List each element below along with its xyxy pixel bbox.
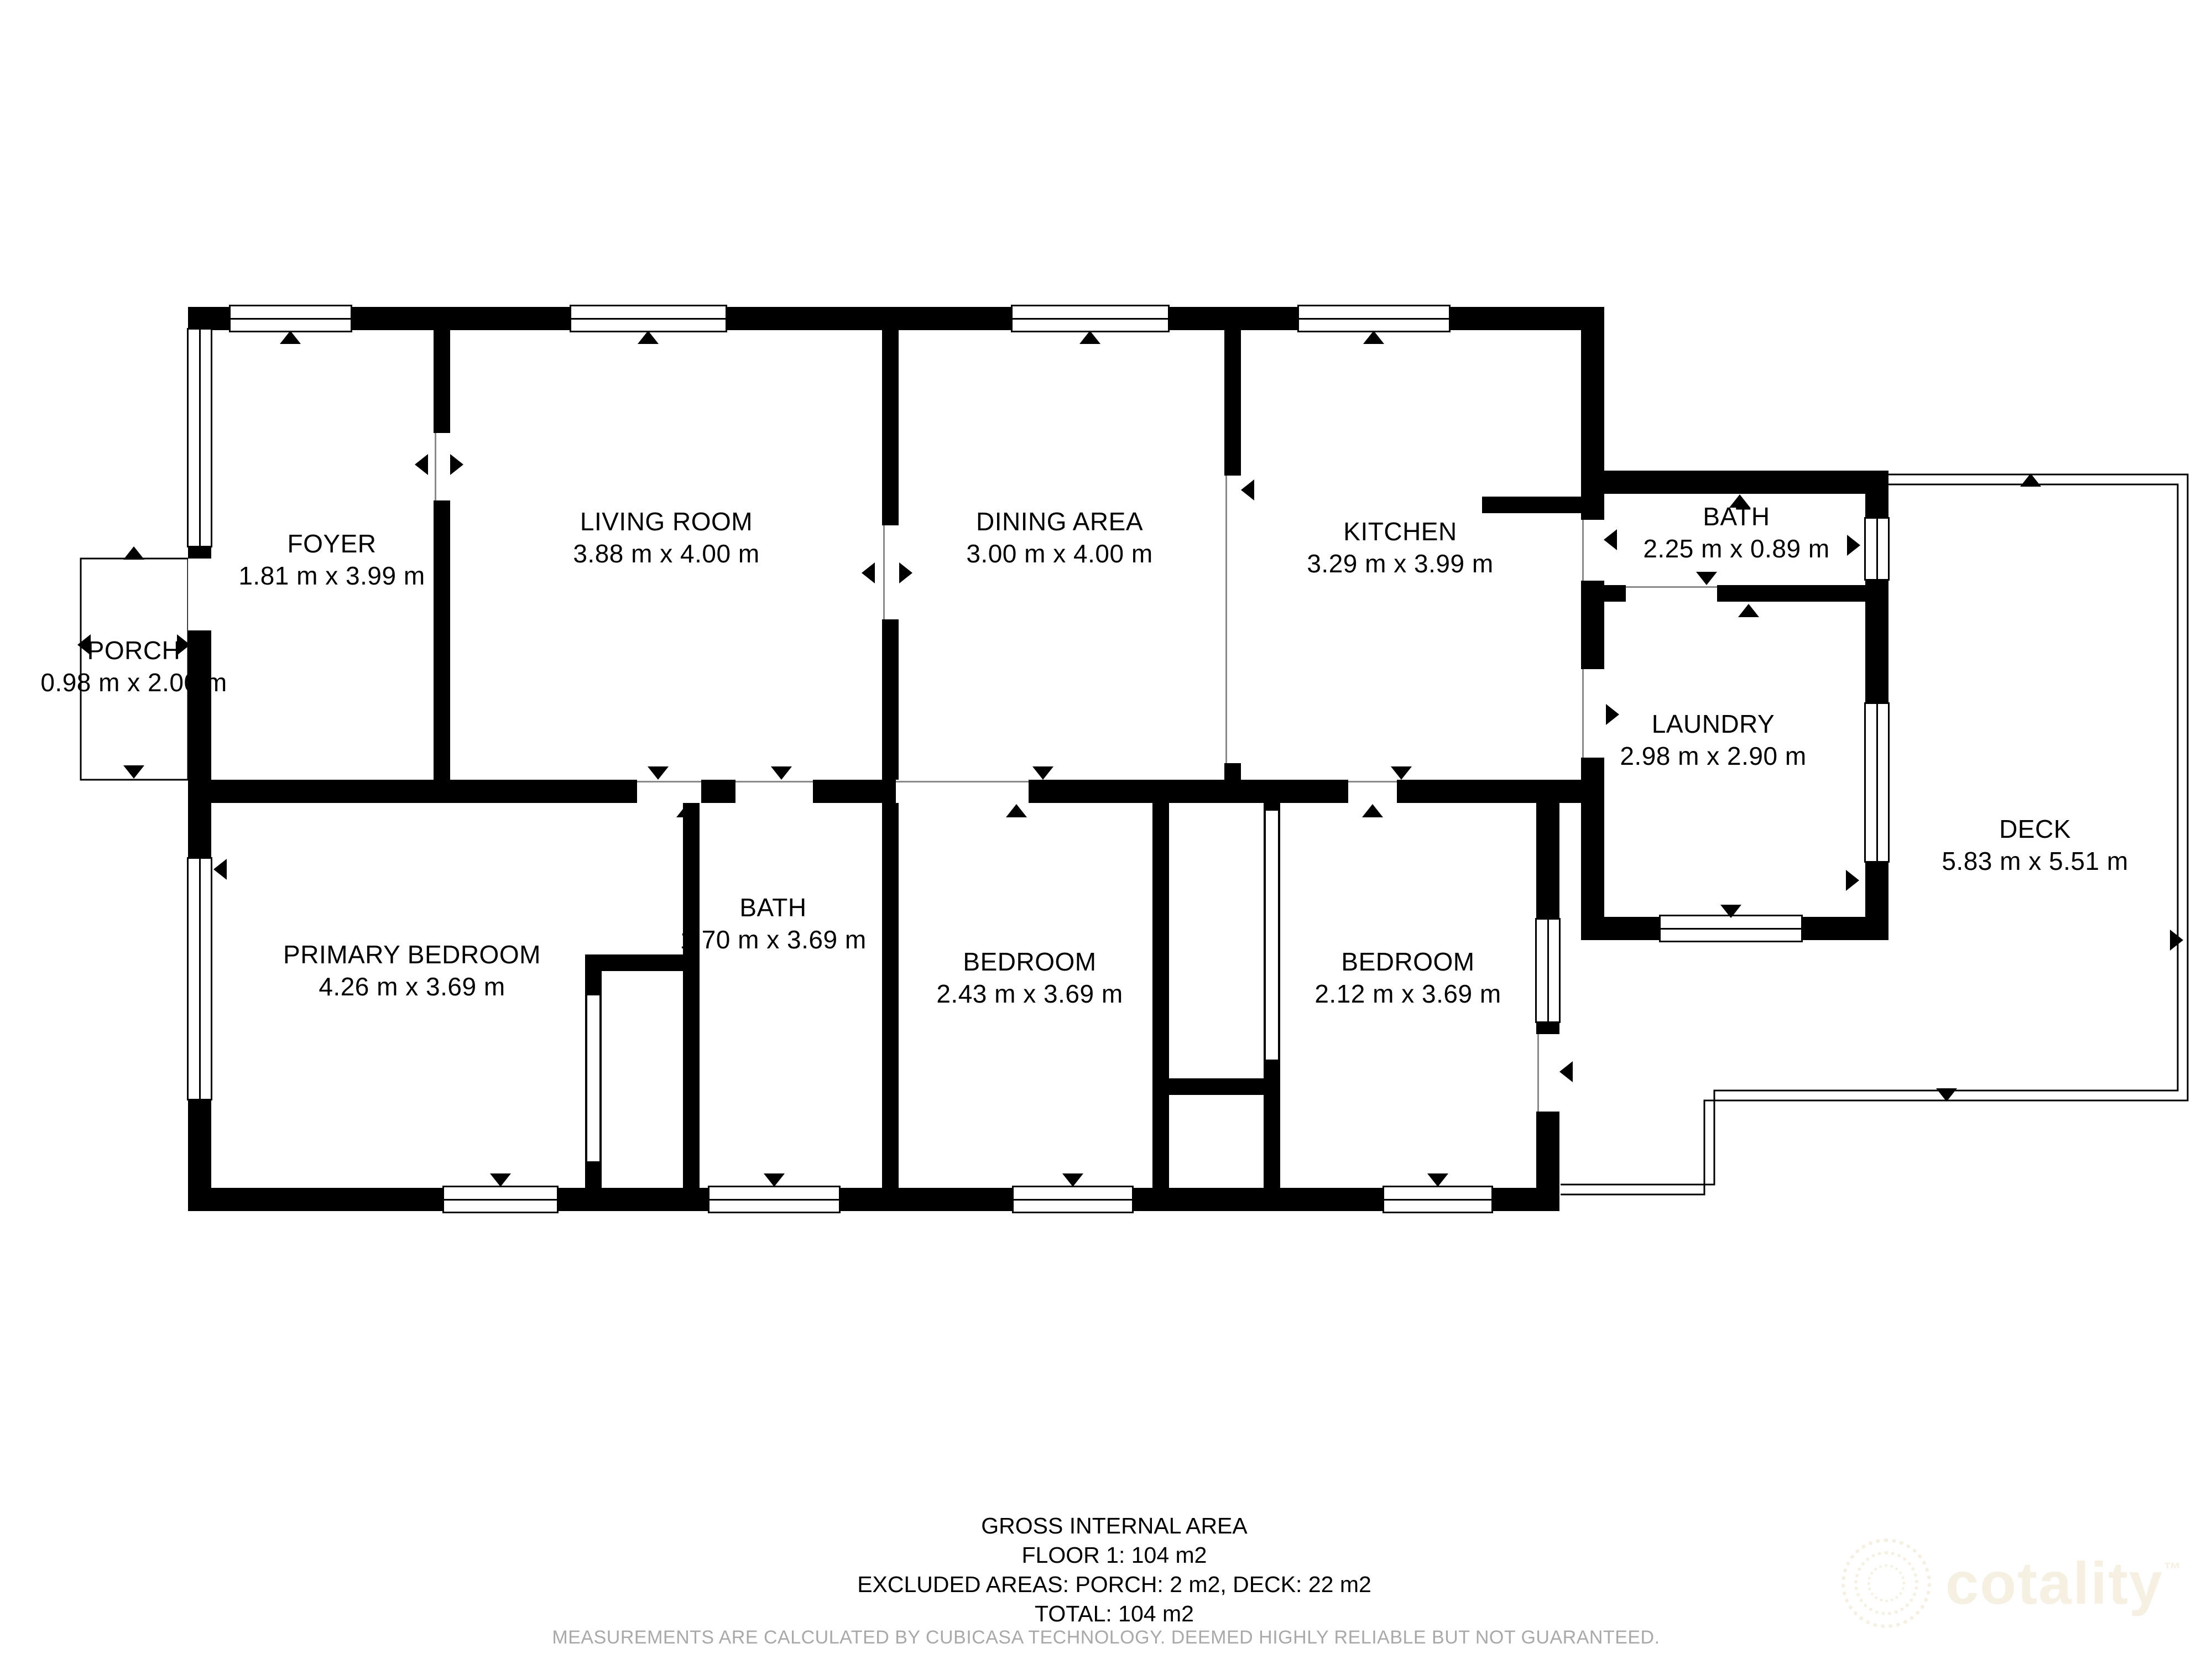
wall: [434, 307, 450, 803]
window: [1659, 915, 1803, 942]
threshold-line: [896, 781, 1029, 782]
door-arrow-down-icon: [1427, 1173, 1448, 1187]
door-arrow-right-icon: [899, 562, 912, 583]
window: [1864, 517, 1890, 581]
wall: [1581, 307, 1604, 935]
threshold-line: [883, 525, 885, 619]
door-arrow-up-icon: [280, 331, 301, 344]
door-opening: [1536, 1034, 1559, 1112]
door-arrow-right-icon: [1606, 704, 1619, 725]
room-label-dining-area: DINING AREA3.00 m x 4.00 m: [966, 505, 1152, 570]
threshold-line: [1626, 586, 1717, 588]
room-dimensions: 1.70 m x 3.69 m: [680, 924, 866, 956]
summary-line: EXCLUDED AREAS: PORCH: 2 m2, DECK: 22 m2: [561, 1570, 1667, 1599]
room-dimensions: 3.29 m x 3.99 m: [1307, 547, 1493, 580]
wall: [188, 1188, 1559, 1211]
threshold-line: [1582, 669, 1584, 758]
room-name: BEDROOM: [936, 946, 1123, 978]
door-arrow-down-icon: [1720, 905, 1741, 918]
window: [1297, 305, 1451, 332]
door-arrow-up-icon: [2020, 473, 2041, 487]
wall: [683, 780, 700, 1211]
trademark-symbol: ™: [2163, 1559, 2181, 1579]
room-dimensions: 4.26 m x 3.69 m: [283, 971, 541, 1003]
door-arrow-down-icon: [123, 765, 144, 779]
door-arrow-left-icon: [1559, 1061, 1573, 1082]
door-arrow-up-icon: [1738, 604, 1759, 617]
room-name: KITCHEN: [1307, 515, 1493, 547]
door-arrow-up-icon: [676, 804, 697, 817]
door-arrow-right-icon: [1846, 870, 1859, 891]
wall: [882, 803, 899, 1188]
door-arrow-down-icon: [1936, 1088, 1957, 1102]
room-dimensions: 2.98 m x 2.90 m: [1620, 740, 1806, 772]
door-opening: [637, 780, 701, 803]
door-arrow-down-icon: [1062, 1173, 1083, 1187]
door-arrow-left-icon: [862, 562, 875, 583]
threshold-line: [1348, 781, 1397, 782]
window: [1011, 305, 1170, 332]
room-dimensions: 3.88 m x 4.00 m: [573, 538, 759, 570]
window: [1383, 1186, 1493, 1213]
room-name: BATH: [680, 891, 866, 924]
door-arrow-left-icon: [1604, 529, 1617, 550]
summary-line: FLOOR 1: 104 m2: [561, 1541, 1667, 1570]
door-arrow-right-icon: [450, 454, 463, 475]
area-summary: GROSS INTERNAL AREAFLOOR 1: 104 m2EXCLUD…: [561, 1511, 1667, 1629]
door-arrow-up-icon: [1362, 804, 1383, 817]
door-arrow-down-icon: [1696, 572, 1717, 585]
door-arrow-up-icon: [123, 546, 144, 560]
window: [1535, 918, 1561, 1023]
room-label-deck: DECK5.83 m x 5.51 m: [1942, 813, 2128, 877]
door-opening: [896, 780, 1029, 803]
door-opening: [587, 995, 599, 1161]
cotality-logo: cotality™: [1841, 1538, 2181, 1628]
summary-line: GROSS INTERNAL AREA: [561, 1511, 1667, 1541]
room-dimensions: 0.98 m x 2.00 m: [40, 666, 227, 698]
room-dimensions: 2.25 m x 0.89 m: [1643, 533, 1829, 565]
room-label-bedroom-1: BEDROOM2.43 m x 3.69 m: [936, 946, 1123, 1010]
room-name: LIVING ROOM: [573, 505, 759, 538]
door-opening: [1348, 780, 1397, 803]
door-arrow-down-icon: [1032, 766, 1053, 780]
room-name: FOYER: [238, 528, 425, 560]
window: [570, 305, 727, 332]
door-arrow-up-icon: [1006, 804, 1027, 817]
door-arrow-up-icon: [1363, 331, 1384, 344]
room-name: BATH: [1643, 500, 1829, 533]
room-name: DINING AREA: [966, 505, 1152, 538]
threshold-line: [735, 781, 813, 782]
threshold-line: [637, 781, 701, 782]
room-name: DECK: [1942, 813, 2128, 845]
door-arrow-up-icon: [1079, 331, 1100, 344]
threshold-line: [1537, 1034, 1539, 1112]
door-arrow-down-icon: [771, 766, 792, 780]
room-label-bath-mid: BATH1.70 m x 3.69 m: [680, 891, 866, 956]
wall: [585, 954, 700, 971]
disclaimer-text: MEASUREMENTS ARE CALCULATED BY CUBICASA …: [387, 1627, 1825, 1648]
threshold-line: [1582, 520, 1584, 581]
wall: [1482, 497, 1581, 513]
room-label-porch: PORCH0.98 m x 2.00 m: [40, 634, 227, 698]
window: [442, 1186, 559, 1213]
floorplan-canvas: FOYER1.81 m x 3.99 mLIVING ROOM3.88 m x …: [0, 0, 2212, 1659]
room-dimensions: 2.12 m x 3.69 m: [1314, 978, 1501, 1010]
window: [1864, 702, 1890, 863]
room-label-primary-bedroom: PRIMARY BEDROOM4.26 m x 3.69 m: [283, 938, 541, 1003]
room-label-living-room: LIVING ROOM3.88 m x 4.00 m: [573, 505, 759, 570]
door-arrow-up-icon: [638, 331, 659, 344]
door-arrow-down-icon: [1391, 766, 1412, 780]
room-name: PRIMARY BEDROOM: [283, 938, 541, 971]
threshold-line: [435, 433, 436, 500]
room-name: PORCH: [40, 634, 227, 666]
room-dimensions: 1.81 m x 3.99 m: [238, 560, 425, 592]
door-arrow-down-icon: [764, 1173, 785, 1187]
door-arrow-left-icon: [1241, 479, 1254, 500]
door-arrow-down-icon: [490, 1173, 511, 1187]
room-dimensions: 3.00 m x 4.00 m: [966, 538, 1152, 570]
door-arrow-left-icon: [213, 859, 227, 880]
wall: [1152, 803, 1169, 1188]
room-dimensions: 2.43 m x 3.69 m: [936, 978, 1123, 1010]
room-dimensions: 5.83 m x 5.51 m: [1942, 845, 2128, 877]
room-label-laundry: LAUNDRY2.98 m x 2.90 m: [1620, 708, 1806, 772]
door-opening: [735, 780, 813, 803]
window: [187, 857, 212, 1100]
door-arrow-right-icon: [1847, 535, 1860, 556]
wall: [1152, 1078, 1280, 1095]
door-opening: [1581, 669, 1604, 758]
door-opening: [1266, 811, 1278, 1060]
door-opening: [1581, 520, 1604, 581]
wall: [1581, 471, 1888, 494]
window: [708, 1186, 841, 1213]
door-arrow-left-icon: [415, 454, 428, 475]
room-label-bath-top: BATH2.25 m x 0.89 m: [1643, 500, 1829, 565]
door-opening: [188, 559, 211, 630]
door-arrow-down-icon: [648, 766, 669, 780]
summary-line: TOTAL: 104 m2: [561, 1599, 1667, 1629]
window: [187, 328, 212, 547]
threshold-line: [1225, 476, 1227, 763]
room-name: BEDROOM: [1314, 946, 1501, 978]
cotality-logo-text: cotality™: [1945, 1553, 2181, 1613]
room-label-foyer: FOYER1.81 m x 3.99 m: [238, 528, 425, 592]
cotality-wordmark: cotality: [1945, 1550, 2163, 1616]
window: [229, 305, 352, 332]
room-label-bedroom-2: BEDROOM2.12 m x 3.69 m: [1314, 946, 1501, 1010]
cotality-globe-icon: [1841, 1538, 1931, 1628]
room-name: LAUNDRY: [1620, 708, 1806, 740]
room-label-kitchen: KITCHEN3.29 m x 3.99 m: [1307, 515, 1493, 580]
door-arrow-right-icon: [2170, 930, 2183, 951]
window: [1012, 1186, 1134, 1213]
